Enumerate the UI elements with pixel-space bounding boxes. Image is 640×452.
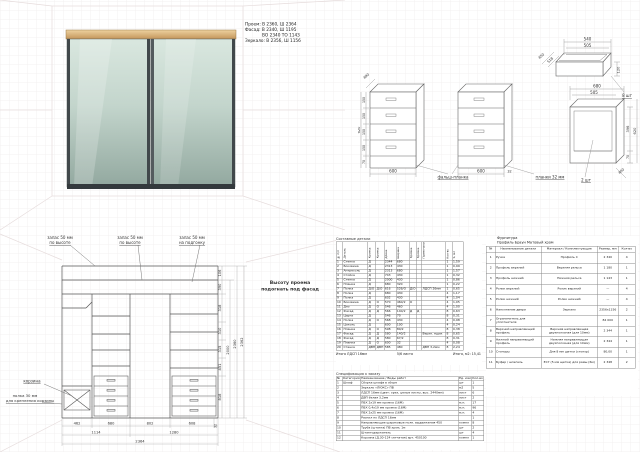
- table-row: 12Корзина (Д.30-124 сетчатая) арт. 45010…: [336, 436, 483, 441]
- qty-label: 8 шт: [622, 93, 632, 98]
- dim: 150: [362, 145, 366, 151]
- cell: 8: [486, 326, 495, 337]
- order-title: Спецификация к заказу: [336, 372, 484, 376]
- dim: 396: [626, 125, 630, 133]
- dim: 70: [626, 155, 630, 159]
- note-line-1: Высоту проема: [270, 280, 310, 286]
- dim: 2360: [233, 339, 237, 349]
- cell: 2 348: [597, 358, 618, 369]
- column-header: Кромка: [376, 242, 384, 260]
- cell: 2: [486, 263, 495, 274]
- cell: 480: [396, 346, 409, 351]
- cell: 1: [472, 436, 484, 441]
- hardware-panel: Фурнитура Профиль Браун Матовый хром №На…: [486, 236, 638, 396]
- cell: 1 180: [597, 263, 618, 274]
- cell: 1: [618, 347, 635, 358]
- wardrobe-structure: [62, 266, 218, 418]
- dim: 620: [633, 127, 637, 135]
- cell: —: [597, 295, 618, 306]
- order-table: №КатегорияНаименование / Виды работЕд. и…: [336, 377, 484, 441]
- dim: 150: [362, 97, 366, 103]
- cell: 4: [618, 295, 635, 306]
- component-drawings: 540 505 450 518 120 8 шт 490 620 150 150…: [358, 0, 640, 230]
- gap-label-1b: по высоте: [49, 240, 71, 245]
- cell: Ролик верхний: [541, 284, 597, 295]
- cell: Профиль верхний: [495, 263, 541, 274]
- cutlist-table: № п/пДетальКромкаКромкаДлинаШиринаКромка…: [336, 242, 464, 351]
- basket-label: корзина: [23, 379, 41, 384]
- basket: [64, 390, 90, 410]
- table-row: 4Ролик верхнийРолик верхний—4: [486, 284, 635, 295]
- cell: 1: [618, 274, 635, 285]
- table-row: 20СтенкаДВПДВП585480ДВП 3,2мм82,24: [336, 346, 463, 351]
- cell: Верхн. ящик: [422, 332, 446, 337]
- dim: 462: [74, 422, 81, 426]
- chest-drawers-1-iso: [370, 84, 424, 168]
- cutlist-title: Составные детали: [336, 237, 482, 241]
- cell: 9: [486, 337, 495, 348]
- cell: Нижний направляющий профиль: [495, 337, 541, 348]
- cell: Верхняя направляющая двухполозная (для 1…: [541, 326, 597, 337]
- cell: 2356х1156: [597, 305, 618, 316]
- design-sheet: { "title_block": { "line1": "Проем: В 23…: [0, 0, 640, 452]
- cell: Для 8 мм щетки (стопор): [541, 347, 597, 358]
- cell: [541, 316, 597, 327]
- dim: 490: [362, 72, 370, 80]
- cell: Ролик верхний: [495, 284, 541, 295]
- bottom-rail: [67, 184, 235, 189]
- cell: 4: [486, 284, 495, 295]
- dim: 120: [617, 66, 621, 74]
- dim-extension-lines: [62, 266, 247, 446]
- cell: Профиль нижний: [495, 274, 541, 285]
- elevation-dims: 106 390 318 310 315 451 818 2000 2360 23…: [74, 269, 244, 444]
- column-header: Примечание: [422, 242, 446, 260]
- cell: 10: [486, 347, 495, 358]
- door-stile: [67, 39, 70, 187]
- dim: 32: [214, 424, 218, 428]
- column-header: S, м2: [452, 242, 463, 260]
- dim: 450: [537, 52, 545, 60]
- cell: компл: [458, 436, 471, 441]
- column-header: Ширина: [396, 242, 409, 260]
- dim: 2362: [240, 337, 244, 346]
- cell: 1: [618, 316, 635, 327]
- gap-label-2b: по высоте: [119, 240, 141, 245]
- open-cabinet-iso: [570, 99, 624, 163]
- cell: 2: [618, 358, 635, 369]
- dim: 1280: [169, 431, 179, 435]
- callout: планки 32 мм: [536, 175, 565, 180]
- cell: ЕС7 (5 мм щетка) для рамы (6м): [541, 358, 597, 369]
- table-row: 11Буфер / шлегельЕС7 (5 мм щетка) для ра…: [486, 358, 635, 369]
- cell: ДВП 3,2мм: [422, 346, 446, 351]
- dim: 310: [218, 327, 222, 335]
- note-line-2: подогнать под фасад: [261, 286, 319, 293]
- dim: 518: [546, 56, 554, 64]
- hardware-subtitle: Профиль Браун Матовый хром: [497, 240, 638, 244]
- cell: Верхний направляющий профиль: [495, 326, 541, 337]
- cell: 4: [618, 253, 635, 264]
- cell: Буфер / шлегель: [495, 358, 541, 369]
- door-stile: [147, 39, 150, 187]
- cell: 6: [486, 305, 495, 316]
- wardrobe-doors: [66, 30, 236, 189]
- dim: 680: [108, 422, 116, 426]
- door-stile: [151, 39, 154, 187]
- cell: 1: [486, 253, 495, 264]
- dim: 620: [358, 126, 361, 134]
- elevation-drawing: запас 50 мм по высоте запас 50 мм по выс…: [0, 230, 345, 452]
- cell: 1: [618, 263, 635, 274]
- cell: 2 340: [597, 253, 618, 264]
- footer-area: Итого, м2: 15,41: [453, 352, 481, 356]
- cell: Наполнение двери: [495, 305, 541, 316]
- cell: Стопоры: [495, 347, 541, 358]
- cell: Д/О: [409, 287, 416, 292]
- dim: 1114: [91, 431, 101, 435]
- order-panel: Спецификация к заказу №КатегорияНаименов…: [336, 372, 484, 450]
- cell: 2: [618, 305, 635, 316]
- dim: 680: [593, 84, 601, 89]
- qty-label: 2 шт: [581, 178, 591, 183]
- drawer-box-iso: [556, 53, 611, 76]
- shelf-label-2: для крепления корзины: [6, 398, 54, 403]
- dim: 600: [389, 169, 397, 174]
- table-row: 6Наполнение двериЗеркало2356х11562: [486, 305, 635, 316]
- cell: 2 344: [597, 337, 618, 348]
- table-row: 8Верхний направляющий профильВерхняя нап…: [486, 326, 635, 337]
- cutlist-header-row: № п/пДетальКромкаКромкаДлинаШиринаКромка…: [336, 242, 463, 260]
- cell: [342, 436, 360, 441]
- table-row: 2Профиль верхнийВерхняя рельса1 1801: [486, 263, 635, 274]
- cutlist-footer: Итого ЛДСП 16мм 5/6 листа Итого, м2: 15,…: [336, 352, 481, 356]
- cell: 4: [618, 284, 635, 295]
- table-row: 7Ограничитель для уплотнителя84 0001: [486, 316, 635, 327]
- top-track-wood: [66, 30, 236, 39]
- dim: 106: [218, 269, 222, 277]
- dim: 600: [477, 169, 485, 174]
- cell: 7: [486, 316, 495, 327]
- cell: ДВП: [368, 346, 376, 351]
- dim: 2364: [135, 440, 145, 444]
- dim: 150: [362, 129, 366, 135]
- cell: Корзина (Д.30-124 сетчатая) арт. 450100: [360, 436, 458, 441]
- dim: 802: [147, 422, 154, 426]
- callout: фальш-планка: [438, 175, 470, 180]
- dim: 315: [218, 346, 222, 353]
- gap-label-3b: на подгонку: [179, 240, 206, 245]
- elevation-labels: запас 50 мм по высоте запас 50 мм по выс…: [6, 235, 319, 403]
- cell: 585: [384, 346, 396, 351]
- cell: —: [597, 284, 618, 295]
- hardware-table: №Наименование деталиМатериал / Комплекту…: [486, 246, 636, 369]
- column-header: Длина: [384, 242, 396, 260]
- cell: Ручка: [495, 253, 541, 264]
- cell: Стенка: [343, 346, 368, 351]
- cell: 84 000: [597, 316, 618, 327]
- dim: 505: [590, 90, 598, 95]
- cell: Ролик нижний: [541, 295, 597, 306]
- cell: Зеркало: [541, 305, 597, 316]
- column-header: Деталь: [343, 242, 368, 260]
- footer-sheets: 5/6 листа: [397, 352, 413, 356]
- dim: 608: [189, 422, 197, 426]
- dim: 318: [218, 304, 222, 312]
- column-header: Кромка: [368, 242, 376, 260]
- cell: Ограничитель для уплотнителя: [495, 316, 541, 327]
- dim: 390: [218, 283, 222, 291]
- table-row: 10СтопорыДля 8 мм щетки (стопор)80,001: [486, 347, 635, 358]
- table-row: 1РучкаПрофиль С2 3404: [486, 253, 635, 264]
- dim: 32: [507, 170, 511, 174]
- dim: 818: [218, 393, 222, 401]
- dim: 2000: [226, 345, 230, 355]
- cell: 5: [486, 295, 495, 306]
- cell: ДВП: [376, 346, 384, 351]
- mirror-dims: Зеркало: В 2356, Ш 1156: [245, 39, 355, 45]
- cell: 1: [618, 337, 635, 348]
- cell: 11: [486, 358, 495, 369]
- cell: 2 344: [597, 326, 618, 337]
- footer-material: Итого ЛДСП 16мм: [336, 352, 367, 356]
- door-stile: [232, 39, 235, 187]
- table-row: 9Нижний направляющий профильНижняя напра…: [486, 337, 635, 348]
- cell: Ролик нижний: [495, 295, 541, 306]
- cell: 3: [486, 274, 495, 285]
- cell: Профиль С: [541, 253, 597, 264]
- chest-drawers-2-iso: [458, 84, 512, 168]
- dim: 540: [584, 37, 592, 42]
- cell: 1: [618, 326, 635, 337]
- cell: 2,24: [452, 346, 463, 351]
- drawer-units: [94, 376, 216, 416]
- table-row: 5Ролик нижнийРолик нижний—4: [486, 295, 635, 306]
- cell: Верхняя рельса: [541, 263, 597, 274]
- dim: 505: [584, 43, 592, 48]
- table-row: 3Профиль нижнийНижняя рельса1 1431: [486, 274, 635, 285]
- cell: 1 143: [597, 274, 618, 285]
- leader-lines: [42, 245, 200, 404]
- dim: 150: [362, 113, 366, 119]
- cutlist-panel: Составные детали № п/пДетальКромкаКромка…: [336, 237, 482, 365]
- cell: Нижняя направляющая двухполозная (для 10…: [541, 337, 597, 348]
- cell: [409, 346, 416, 351]
- dim: 451: [218, 364, 222, 371]
- column-header: Кромка: [409, 242, 416, 260]
- dim: 70: [362, 160, 366, 164]
- cell: 80,00: [597, 347, 618, 358]
- cell: Нижняя рельса: [541, 274, 597, 285]
